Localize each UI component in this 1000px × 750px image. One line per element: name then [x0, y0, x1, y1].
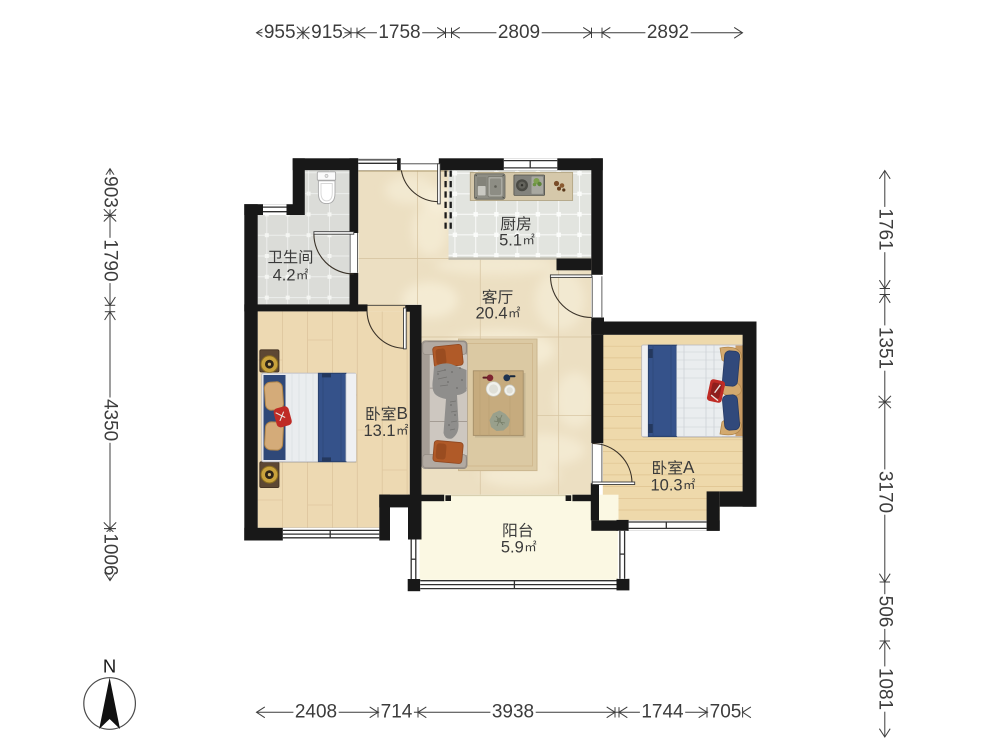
svg-text:A: A	[683, 458, 695, 477]
svg-text:5.9: 5.9	[501, 539, 524, 557]
svg-text:1006: 1006	[100, 533, 121, 575]
svg-text:N: N	[103, 656, 116, 677]
svg-text:13.1: 13.1	[363, 422, 395, 440]
svg-text:2892: 2892	[647, 22, 689, 43]
svg-text:955: 955	[264, 22, 296, 43]
svg-text:1761: 1761	[875, 208, 896, 250]
svg-text:2408: 2408	[295, 702, 337, 723]
svg-text:20.4: 20.4	[475, 305, 507, 323]
svg-text:4350: 4350	[100, 399, 121, 441]
svg-text:1790: 1790	[100, 239, 121, 281]
svg-text:4.2: 4.2	[273, 267, 296, 285]
svg-text:3938: 3938	[492, 702, 534, 723]
svg-text:705: 705	[710, 702, 742, 723]
svg-text:903: 903	[100, 176, 121, 208]
svg-text:714: 714	[381, 702, 413, 723]
svg-text:1081: 1081	[875, 668, 896, 710]
svg-text:506: 506	[875, 596, 896, 628]
svg-text:2809: 2809	[498, 22, 540, 43]
svg-text:1744: 1744	[641, 702, 684, 723]
svg-text:5.1: 5.1	[499, 232, 522, 250]
svg-text:B: B	[397, 404, 408, 423]
svg-text:1351: 1351	[875, 327, 896, 369]
svg-text:3170: 3170	[875, 471, 896, 513]
svg-text:915: 915	[311, 22, 343, 43]
svg-text:10.3: 10.3	[650, 477, 682, 495]
svg-text:1758: 1758	[378, 22, 420, 43]
